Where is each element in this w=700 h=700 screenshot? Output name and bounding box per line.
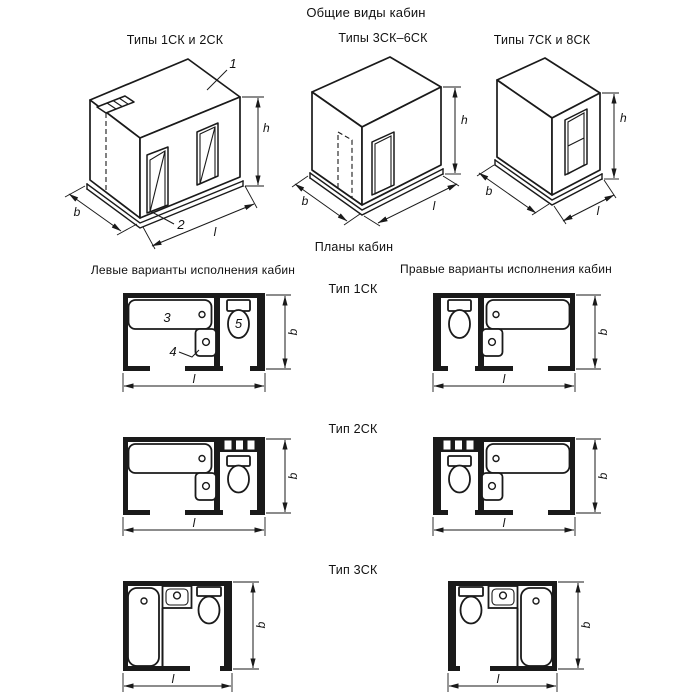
plan-2ck-left: b l xyxy=(110,432,305,544)
svg-text:l: l xyxy=(193,372,196,386)
door-opening-2 xyxy=(197,123,218,185)
svg-text:b: b xyxy=(254,621,268,628)
callout-washbasin: 4 xyxy=(169,344,176,359)
callout-bath: 3 xyxy=(163,310,171,325)
svg-text:l: l xyxy=(497,672,500,686)
isometric-view-1ck-2ck: 1 2 b l h xyxy=(55,50,285,255)
svg-text:b: b xyxy=(596,472,610,479)
svg-text:h: h xyxy=(620,111,627,125)
dimension-l: l xyxy=(123,672,232,692)
dimension-l: l xyxy=(123,516,265,536)
plan-3ck-left: b l xyxy=(110,575,272,697)
dimension-l: l xyxy=(123,372,265,392)
svg-text:b: b xyxy=(286,328,300,335)
svg-text:l: l xyxy=(503,372,506,386)
dimension-l: l xyxy=(433,516,575,536)
door-opening-1 xyxy=(147,147,168,213)
callout-base-panel: 2 xyxy=(176,217,185,232)
plan-2ck-right: b l xyxy=(420,432,615,544)
callout-toilet: 5 xyxy=(235,316,243,331)
left-variants-header: Левые варианты исполнения кабин xyxy=(91,263,295,277)
dimension-h: h xyxy=(443,87,468,174)
dimension-h: h xyxy=(242,97,270,186)
svg-text:l: l xyxy=(503,516,506,530)
dimension-b: b xyxy=(266,295,300,369)
svg-text:b: b xyxy=(596,328,610,335)
door-opening xyxy=(372,132,394,195)
row-label-3ck: Тип 3СК xyxy=(329,563,378,577)
svg-text:b: b xyxy=(286,472,300,479)
dimension-l: l xyxy=(433,372,575,392)
row-label-2ck: Тип 2СК xyxy=(329,422,378,436)
plan-1ck-right: b l xyxy=(420,288,615,400)
dimension-b: b xyxy=(233,582,268,669)
dimension-b: b xyxy=(558,582,593,669)
view-caption-3ck-6ck: Типы 3СК–6СК xyxy=(338,31,427,45)
door-opening xyxy=(565,109,587,175)
plan-1ck-left: 3 4 5 b l xyxy=(110,288,305,400)
plan-3ck-right: b l xyxy=(435,575,597,697)
isometric-view-3ck-6ck: b l h xyxy=(290,48,480,233)
callout-roof-panel: 1 xyxy=(229,56,236,71)
svg-text:l: l xyxy=(214,225,217,239)
page-title: Общие виды кабин xyxy=(306,5,425,20)
plans-title: Планы кабин xyxy=(315,240,394,254)
gost-cabin-drawing: Общие виды кабин Типы 1СК и 2СК Типы 3СК… xyxy=(0,0,700,700)
isometric-view-7ck-8ck: b l h xyxy=(468,45,653,230)
svg-text:b: b xyxy=(486,184,493,198)
svg-text:b: b xyxy=(579,621,593,628)
svg-text:l: l xyxy=(193,516,196,530)
row-label-1ck: Тип 1СК xyxy=(329,282,378,296)
svg-text:l: l xyxy=(433,199,436,213)
dimension-b: b xyxy=(576,295,610,369)
view-caption-1ck-2ck: Типы 1СК и 2СК xyxy=(127,33,224,47)
svg-text:b: b xyxy=(302,194,309,208)
right-variants-header: Правые варианты исполнения кабин xyxy=(400,262,612,276)
svg-text:h: h xyxy=(263,121,270,135)
svg-text:b: b xyxy=(74,205,81,219)
dimension-b: b xyxy=(576,439,610,513)
dimension-h: h xyxy=(602,93,627,179)
svg-text:l: l xyxy=(172,672,175,686)
dimension-l: l xyxy=(448,672,557,692)
svg-text:l: l xyxy=(597,204,600,218)
svg-text:h: h xyxy=(461,113,468,127)
dimension-b: b xyxy=(266,439,300,513)
